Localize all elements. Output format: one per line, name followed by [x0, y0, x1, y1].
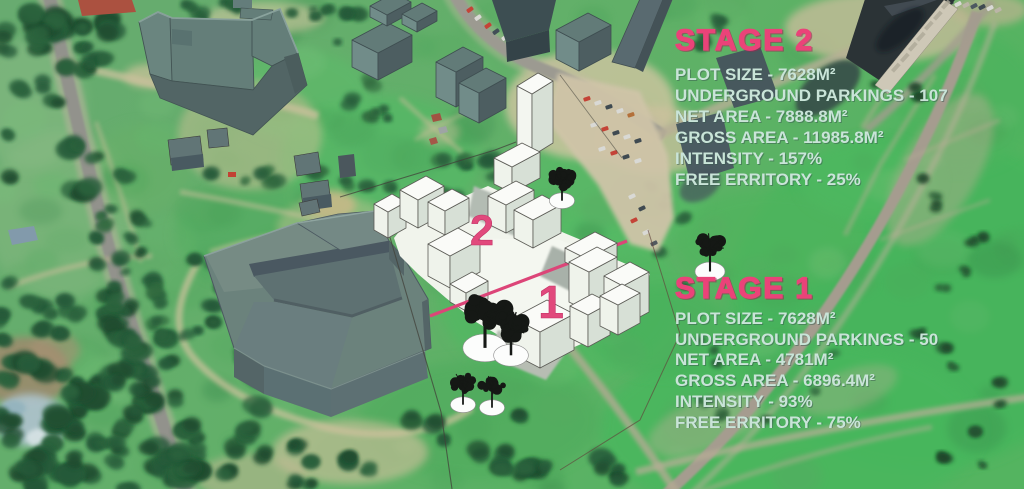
svg-text:GROSS AREA - 6896.4M²: GROSS AREA - 6896.4M²: [675, 371, 875, 390]
svg-text:NET AREA - 4781M²: NET AREA - 4781M²: [675, 350, 834, 369]
svg-text:GROSS AREA - 11985.8M²: GROSS AREA - 11985.8M²: [675, 128, 884, 147]
svg-text:INTENSITY - 93%: INTENSITY - 93%: [675, 392, 813, 411]
svg-text:FREE ERRITORY - 25%: FREE ERRITORY - 25%: [675, 170, 861, 189]
svg-text:INTENSITY - 157%: INTENSITY - 157%: [675, 149, 822, 168]
svg-text:PLOT SIZE - 7628M²: PLOT SIZE - 7628M²: [675, 65, 836, 84]
svg-text:PLOT SIZE - 7628M²: PLOT SIZE - 7628M²: [675, 309, 836, 328]
svg-text:FREE ERRITORY - 75%: FREE ERRITORY - 75%: [675, 413, 861, 432]
svg-text:NET AREA - 7888.8M²: NET AREA - 7888.8M²: [675, 107, 848, 126]
svg-text:STAGE 2: STAGE 2: [675, 24, 814, 57]
svg-text:UNDERGROUND PARKINGS - 50: UNDERGROUND PARKINGS - 50: [675, 330, 938, 349]
svg-text:UNDERGROUND PARKINGS - 107: UNDERGROUND PARKINGS - 107: [675, 86, 948, 105]
svg-text:STAGE 1: STAGE 1: [675, 272, 814, 305]
